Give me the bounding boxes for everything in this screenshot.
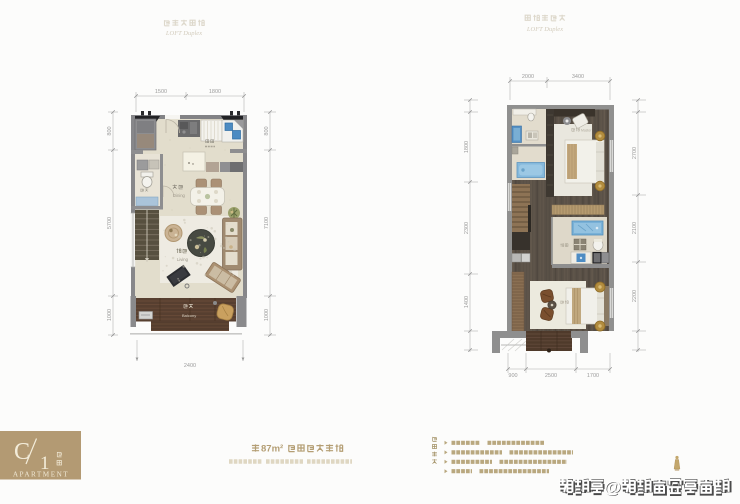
svg-text:1400: 1400 — [464, 296, 470, 308]
svg-text:Living: Living — [177, 257, 189, 262]
svg-text:1000: 1000 — [264, 309, 270, 321]
svg-text:1800: 1800 — [464, 141, 470, 153]
svg-text:5700: 5700 — [107, 217, 113, 229]
svg-text:2100: 2100 — [632, 222, 638, 234]
svg-text:Dining: Dining — [173, 193, 186, 198]
svg-text:87m²: 87m² — [261, 444, 283, 455]
svg-text:2700: 2700 — [632, 147, 638, 159]
svg-text:LOFT Duplex: LOFT Duplex — [526, 26, 563, 33]
svg-text:APARTMENT: APARTMENT — [13, 471, 69, 479]
svg-text:Balcony: Balcony — [182, 313, 196, 318]
svg-text:Master: Master — [581, 129, 592, 133]
svg-text:1800: 1800 — [209, 89, 221, 95]
svg-text:@: @ — [604, 477, 621, 497]
svg-text:2400: 2400 — [184, 363, 196, 369]
svg-text:LOFT Duplex: LOFT Duplex — [165, 30, 202, 37]
svg-text:2000: 2000 — [522, 74, 534, 80]
svg-text:900: 900 — [508, 373, 517, 379]
svg-text:800: 800 — [264, 126, 270, 135]
svg-text:2300: 2300 — [464, 222, 470, 234]
svg-text:3400: 3400 — [572, 74, 584, 80]
svg-text:7100: 7100 — [264, 217, 270, 229]
svg-text:800: 800 — [107, 126, 113, 135]
svg-text:2500: 2500 — [545, 373, 557, 379]
svg-text:2200: 2200 — [632, 290, 638, 302]
svg-text:1500: 1500 — [155, 89, 167, 95]
svg-text:1700: 1700 — [587, 373, 599, 379]
svg-text:1000: 1000 — [107, 309, 113, 321]
